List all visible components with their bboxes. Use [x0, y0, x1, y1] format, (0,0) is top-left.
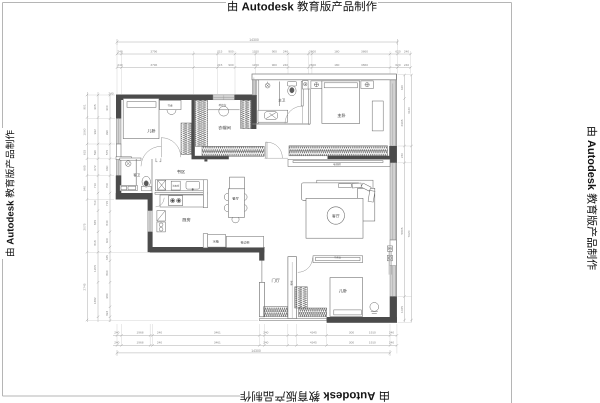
svg-text:900: 900: [228, 50, 233, 54]
svg-text:393: 393: [105, 311, 109, 316]
svg-text:1910: 1910: [369, 331, 376, 335]
svg-text:575: 575: [105, 150, 109, 155]
svg-text:240: 240: [283, 50, 288, 54]
svg-text:180: 180: [334, 50, 339, 54]
svg-text:2600: 2600: [309, 50, 316, 54]
svg-text:240: 240: [117, 50, 122, 54]
svg-text:710: 710: [93, 200, 97, 205]
svg-text:240: 240: [117, 63, 122, 67]
svg-text:240: 240: [263, 331, 268, 335]
svg-text:240: 240: [389, 341, 394, 345]
svg-text:980: 980: [105, 293, 109, 298]
svg-text:240: 240: [404, 63, 409, 67]
svg-text:700: 700: [105, 183, 109, 188]
svg-text:3461: 3461: [214, 331, 221, 335]
svg-text:3461: 3461: [214, 341, 221, 345]
svg-text:7620: 7620: [407, 230, 411, 237]
svg-text:3860: 3860: [361, 63, 368, 67]
svg-text:900: 900: [272, 63, 277, 67]
svg-text:1150: 1150: [252, 63, 259, 67]
svg-text:240: 240: [108, 92, 113, 96]
svg-text:715: 715: [105, 201, 109, 206]
svg-text:1968: 1968: [137, 331, 144, 335]
svg-text:818: 818: [93, 240, 97, 245]
svg-text:240: 240: [283, 63, 288, 67]
svg-text:710: 710: [93, 183, 97, 188]
svg-text:1205: 1205: [93, 265, 97, 272]
svg-text:905: 905: [93, 104, 97, 109]
svg-text:620: 620: [400, 85, 404, 90]
svg-text:240: 240: [157, 341, 162, 345]
svg-text:2965: 2965: [400, 119, 404, 126]
svg-text:2600: 2600: [309, 63, 316, 67]
svg-text:180: 180: [334, 63, 339, 67]
svg-text:900: 900: [105, 105, 109, 110]
svg-text:615: 615: [82, 150, 86, 155]
svg-text:240: 240: [157, 331, 162, 335]
svg-text:1382: 1382: [93, 297, 97, 304]
svg-text:3796: 3796: [150, 63, 157, 67]
svg-text:940: 940: [82, 186, 86, 191]
svg-text:901: 901: [82, 104, 86, 109]
svg-text:240: 240: [389, 331, 394, 335]
svg-text:1150: 1150: [252, 50, 259, 54]
svg-text:240: 240: [114, 341, 119, 345]
svg-text:1910: 1910: [369, 341, 376, 345]
svg-text:1025: 1025: [400, 306, 404, 313]
svg-text:2745: 2745: [82, 283, 86, 290]
svg-text:240: 240: [404, 50, 409, 54]
svg-text:600: 600: [105, 238, 109, 243]
svg-text:4345: 4345: [310, 341, 317, 345]
svg-text:990: 990: [105, 130, 109, 135]
svg-text:345: 345: [105, 255, 109, 260]
svg-text:3860: 3860: [361, 50, 368, 54]
svg-text:5805: 5805: [400, 227, 404, 234]
svg-text:215: 215: [217, 50, 222, 54]
svg-text:672: 672: [93, 165, 97, 170]
svg-text:845: 845: [93, 220, 97, 225]
svg-text:240: 240: [114, 331, 119, 335]
svg-text:300: 300: [349, 331, 354, 335]
svg-text:2075: 2075: [82, 223, 86, 230]
svg-text:660: 660: [105, 165, 109, 170]
svg-text:590: 590: [93, 150, 97, 155]
svg-text:240: 240: [263, 341, 268, 345]
svg-text:3120: 3120: [407, 107, 411, 114]
svg-text:900: 900: [228, 63, 233, 67]
svg-text:840: 840: [105, 220, 109, 225]
svg-text:620: 620: [395, 63, 400, 67]
svg-text:860: 860: [105, 270, 109, 275]
svg-text:4345: 4345: [310, 331, 317, 335]
svg-text:300: 300: [349, 341, 354, 345]
svg-text:1060: 1060: [82, 128, 86, 135]
svg-text:1968: 1968: [137, 341, 144, 345]
svg-text:992: 992: [93, 129, 97, 134]
svg-text:665: 665: [82, 165, 86, 170]
svg-text:14300: 14300: [251, 349, 261, 353]
svg-text:620: 620: [395, 50, 400, 54]
svg-text:900: 900: [272, 50, 277, 54]
svg-text:240: 240: [400, 153, 404, 158]
svg-text:215: 215: [217, 63, 222, 67]
svg-text:3796: 3796: [150, 50, 157, 54]
svg-text:14300: 14300: [249, 38, 259, 42]
